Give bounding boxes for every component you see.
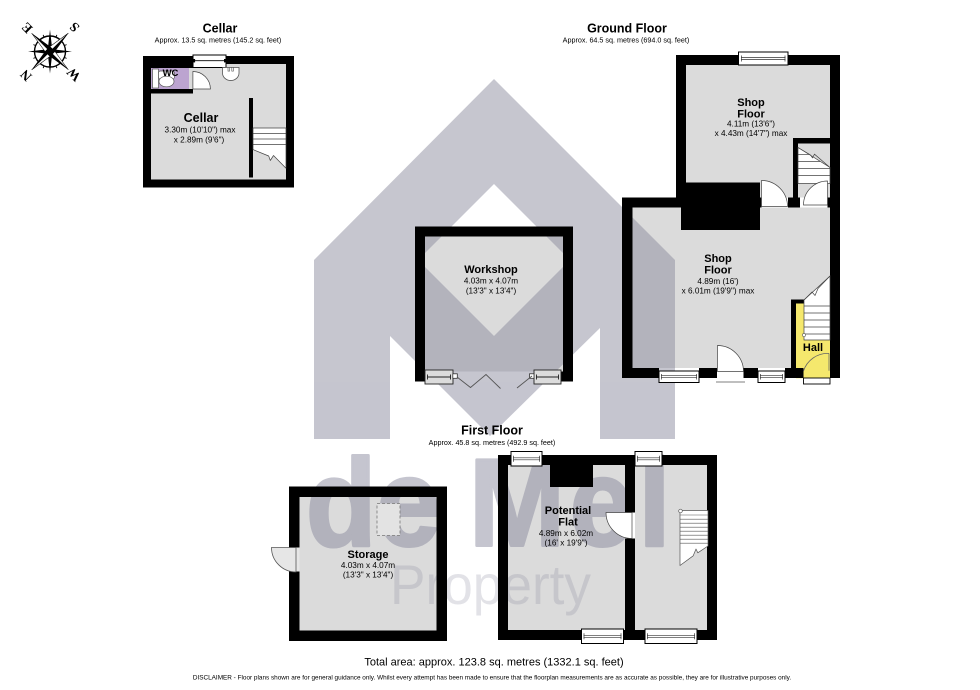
svg-text:Total area: approx. 123.8 sq.: Total area: approx. 123.8 sq. metres (13…: [364, 657, 623, 669]
svg-text:4.89m (16'): 4.89m (16'): [697, 277, 738, 286]
svg-text:Flat: Flat: [558, 517, 578, 529]
svg-text:Approx. 64.5 sq. metres (694.0: Approx. 64.5 sq. metres (694.0 sq. feet): [563, 36, 690, 45]
svg-text:Storage: Storage: [348, 549, 389, 561]
svg-text:WC: WC: [163, 68, 179, 79]
svg-text:DISCLAIMER - Floor plans show: DISCLAIMER - Floor plans shown are for g…: [193, 675, 792, 682]
svg-text:Cellar: Cellar: [203, 22, 238, 36]
svg-text:First Floor: First Floor: [461, 424, 523, 438]
svg-text:Potential: Potential: [545, 505, 591, 517]
svg-text:(13'3" x 13'4"): (13'3" x 13'4"): [343, 571, 394, 580]
svg-text:x 4.43m (14'7") max: x 4.43m (14'7") max: [715, 129, 788, 138]
svg-text:4.89m x 6.02m: 4.89m x 6.02m: [539, 529, 593, 538]
svg-text:(16' x 19'9"): (16' x 19'9"): [545, 539, 588, 548]
svg-text:3.30m (10'10") max: 3.30m (10'10") max: [165, 126, 236, 135]
svg-text:x 6.01m (19'9") max: x 6.01m (19'9") max: [682, 287, 755, 296]
svg-text:Property: Property: [390, 554, 592, 617]
svg-text:4.03m x 4.07m: 4.03m x 4.07m: [464, 277, 518, 286]
svg-text:Approx. 45.8 sq. metres (492.9: Approx. 45.8 sq. metres (492.9 sq. feet): [429, 438, 556, 447]
svg-text:Shop: Shop: [737, 97, 765, 109]
svg-text:Ground Floor: Ground Floor: [587, 22, 667, 36]
svg-text:Workshop: Workshop: [464, 264, 518, 276]
svg-text:Cellar: Cellar: [184, 111, 219, 125]
svg-text:x 2.89m (9'6"): x 2.89m (9'6"): [174, 136, 225, 145]
svg-text:Approx. 13.5 sq. metres (145.2: Approx. 13.5 sq. metres (145.2 sq. feet): [155, 36, 282, 45]
svg-text:Hall: Hall: [803, 342, 823, 354]
svg-text:Shop: Shop: [704, 253, 732, 265]
svg-text:4.11m (13'6"): 4.11m (13'6"): [727, 120, 775, 129]
svg-text:4.03m x 4.07m: 4.03m x 4.07m: [341, 561, 395, 570]
svg-text:Floor: Floor: [704, 265, 732, 277]
svg-text:(13'3" x 13'4"): (13'3" x 13'4"): [466, 287, 517, 296]
